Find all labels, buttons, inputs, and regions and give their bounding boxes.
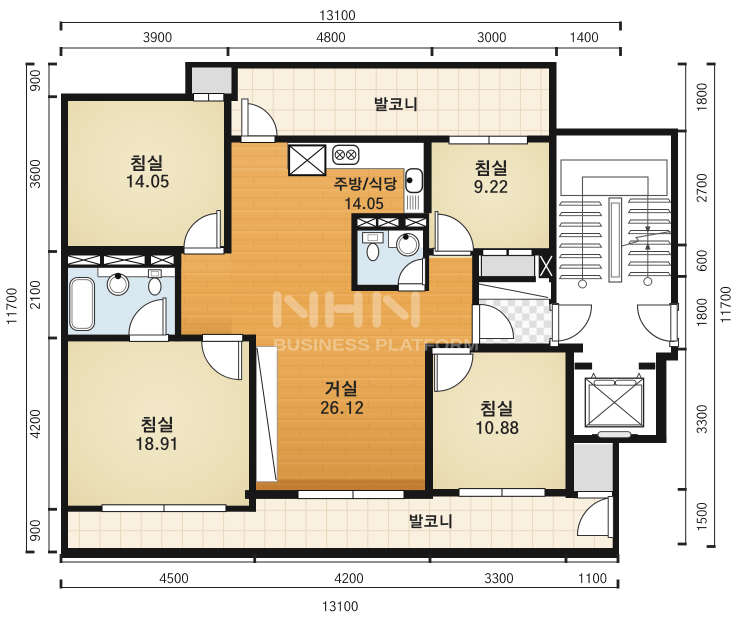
svg-text:BUSINESS PLATFORM: BUSINESS PLATFORM bbox=[273, 337, 479, 355]
